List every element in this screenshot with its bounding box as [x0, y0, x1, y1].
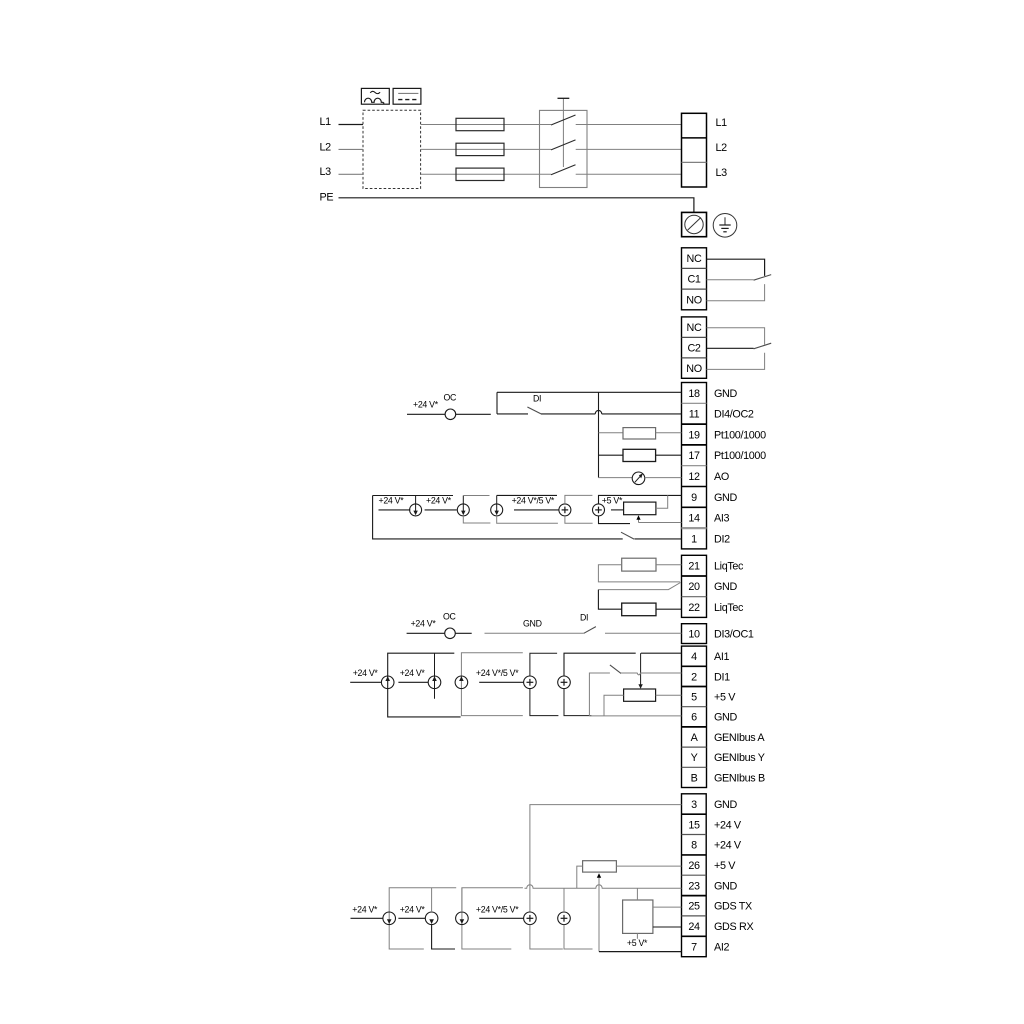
svg-text:+5 V*: +5 V* — [627, 938, 648, 948]
svg-text:L2: L2 — [320, 141, 332, 153]
svg-text:+24 V: +24 V — [714, 840, 742, 852]
svg-text:AI1: AI1 — [714, 651, 730, 663]
svg-text:12: 12 — [688, 471, 700, 483]
svg-text:AI3: AI3 — [714, 513, 730, 525]
svg-text:9: 9 — [691, 492, 697, 504]
svg-text:+24 V*: +24 V* — [352, 904, 378, 914]
svg-text:GND: GND — [714, 712, 737, 724]
svg-text:DI: DI — [533, 393, 541, 403]
svg-text:7: 7 — [691, 941, 697, 953]
svg-text:+5 V*: +5 V* — [602, 496, 623, 506]
svg-text:C2: C2 — [687, 343, 700, 355]
svg-text:3: 3 — [691, 799, 697, 811]
svg-text:+24 V*/5 V*: +24 V*/5 V* — [476, 668, 519, 678]
svg-text:+24 V: +24 V — [714, 819, 742, 831]
svg-text:+24 V*/5 V*: +24 V*/5 V* — [476, 904, 519, 914]
svg-text:+24 V*: +24 V* — [426, 496, 452, 506]
svg-text:C1: C1 — [687, 274, 700, 286]
svg-text:DI: DI — [580, 613, 588, 623]
svg-text:5: 5 — [691, 692, 697, 704]
svg-text:GENIbus B: GENIbus B — [714, 772, 765, 784]
svg-text:DI4/OC2: DI4/OC2 — [714, 409, 754, 421]
svg-text:10: 10 — [688, 629, 700, 641]
svg-text:PE: PE — [320, 191, 334, 203]
svg-text:GDS TX: GDS TX — [714, 901, 752, 913]
svg-text:6: 6 — [691, 712, 697, 724]
svg-text:GENIbus A: GENIbus A — [714, 732, 765, 744]
svg-text:20: 20 — [688, 581, 700, 593]
svg-text:A: A — [691, 732, 699, 744]
svg-text:B: B — [691, 772, 698, 784]
svg-text:LiqTec: LiqTec — [714, 561, 744, 573]
svg-text:+24 V*: +24 V* — [353, 668, 379, 678]
svg-text:GND: GND — [714, 880, 737, 892]
svg-text:23: 23 — [688, 880, 700, 892]
svg-text:GND: GND — [714, 581, 737, 593]
svg-text:+5 V: +5 V — [714, 860, 736, 872]
svg-text:GND: GND — [714, 799, 737, 811]
svg-text:21: 21 — [688, 561, 700, 573]
svg-text:8: 8 — [691, 840, 697, 852]
svg-text:1: 1 — [691, 533, 697, 545]
svg-text:DI3/OC1: DI3/OC1 — [714, 629, 754, 641]
svg-text:15: 15 — [688, 819, 700, 831]
svg-text:Pt100/1000: Pt100/1000 — [714, 450, 766, 462]
svg-text:11: 11 — [689, 409, 700, 421]
svg-text:4: 4 — [691, 651, 697, 663]
svg-text:25: 25 — [688, 901, 700, 913]
svg-text:19: 19 — [688, 429, 700, 441]
svg-text:GND: GND — [714, 388, 737, 400]
svg-text:NO: NO — [686, 363, 702, 375]
svg-text:DI2: DI2 — [714, 533, 730, 545]
svg-text:24: 24 — [688, 921, 700, 933]
svg-text:GND: GND — [523, 619, 542, 629]
svg-text:+24 V*/5 V*: +24 V*/5 V* — [512, 496, 555, 506]
svg-text:OC: OC — [444, 392, 458, 402]
svg-text:GDS RX: GDS RX — [714, 921, 753, 933]
svg-text:+24 V*: +24 V* — [411, 619, 437, 629]
svg-text:DI1: DI1 — [714, 671, 730, 683]
svg-text:L3: L3 — [320, 166, 332, 178]
svg-text:L1: L1 — [320, 116, 332, 128]
svg-text:+24 V*: +24 V* — [413, 399, 439, 409]
svg-text:LiqTec: LiqTec — [714, 602, 744, 614]
svg-text:OC: OC — [443, 612, 457, 622]
svg-text:Pt100/1000: Pt100/1000 — [714, 429, 766, 441]
svg-text:L2: L2 — [716, 142, 728, 154]
svg-text:14: 14 — [688, 513, 700, 525]
svg-text:NC: NC — [687, 322, 702, 334]
svg-text:22: 22 — [688, 602, 700, 614]
svg-text:L3: L3 — [716, 167, 728, 179]
svg-text:GND: GND — [714, 492, 737, 504]
svg-text:+24 V*: +24 V* — [400, 668, 426, 678]
svg-text:NO: NO — [686, 294, 702, 306]
svg-text:AO: AO — [714, 471, 729, 483]
svg-text:GENIbus Y: GENIbus Y — [714, 752, 765, 764]
svg-text:18: 18 — [688, 388, 700, 400]
svg-text:AI2: AI2 — [714, 941, 730, 953]
svg-text:17: 17 — [688, 450, 700, 462]
svg-text:+5 V: +5 V — [714, 692, 736, 704]
svg-text:NC: NC — [687, 253, 702, 265]
svg-text:L1: L1 — [716, 117, 728, 129]
svg-text:2: 2 — [691, 671, 697, 683]
svg-text:Y: Y — [691, 752, 698, 764]
svg-text:+24 V*: +24 V* — [379, 496, 405, 506]
svg-text:+24 V*: +24 V* — [400, 904, 426, 914]
svg-text:26: 26 — [688, 860, 700, 872]
